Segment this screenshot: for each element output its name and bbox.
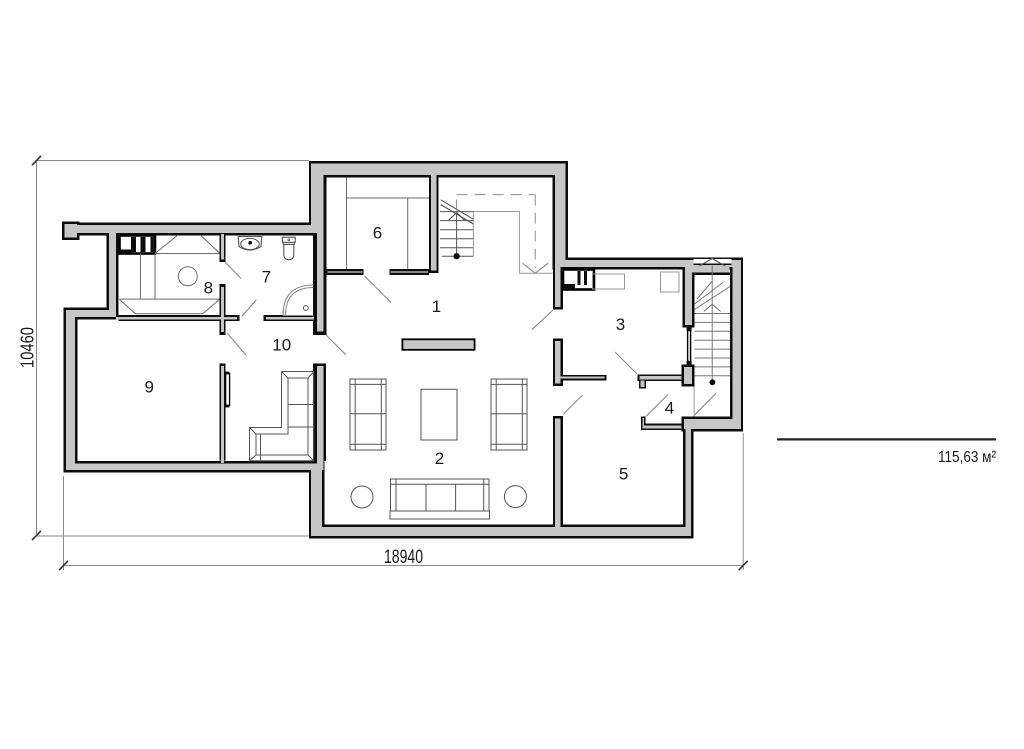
svg-text:10460: 10460 [18, 327, 38, 368]
svg-text:7: 7 [262, 268, 271, 287]
svg-text:6: 6 [373, 224, 382, 243]
svg-text:5: 5 [619, 465, 628, 484]
svg-text:1: 1 [432, 297, 441, 316]
svg-text:9: 9 [144, 378, 153, 397]
svg-text:115,63 м²: 115,63 м² [938, 449, 997, 466]
svg-text:10: 10 [272, 336, 291, 355]
svg-text:8: 8 [204, 279, 213, 298]
svg-text:4: 4 [665, 399, 674, 418]
svg-text:18940: 18940 [384, 547, 423, 568]
svg-text:2: 2 [435, 449, 444, 468]
svg-text:3: 3 [616, 315, 625, 334]
